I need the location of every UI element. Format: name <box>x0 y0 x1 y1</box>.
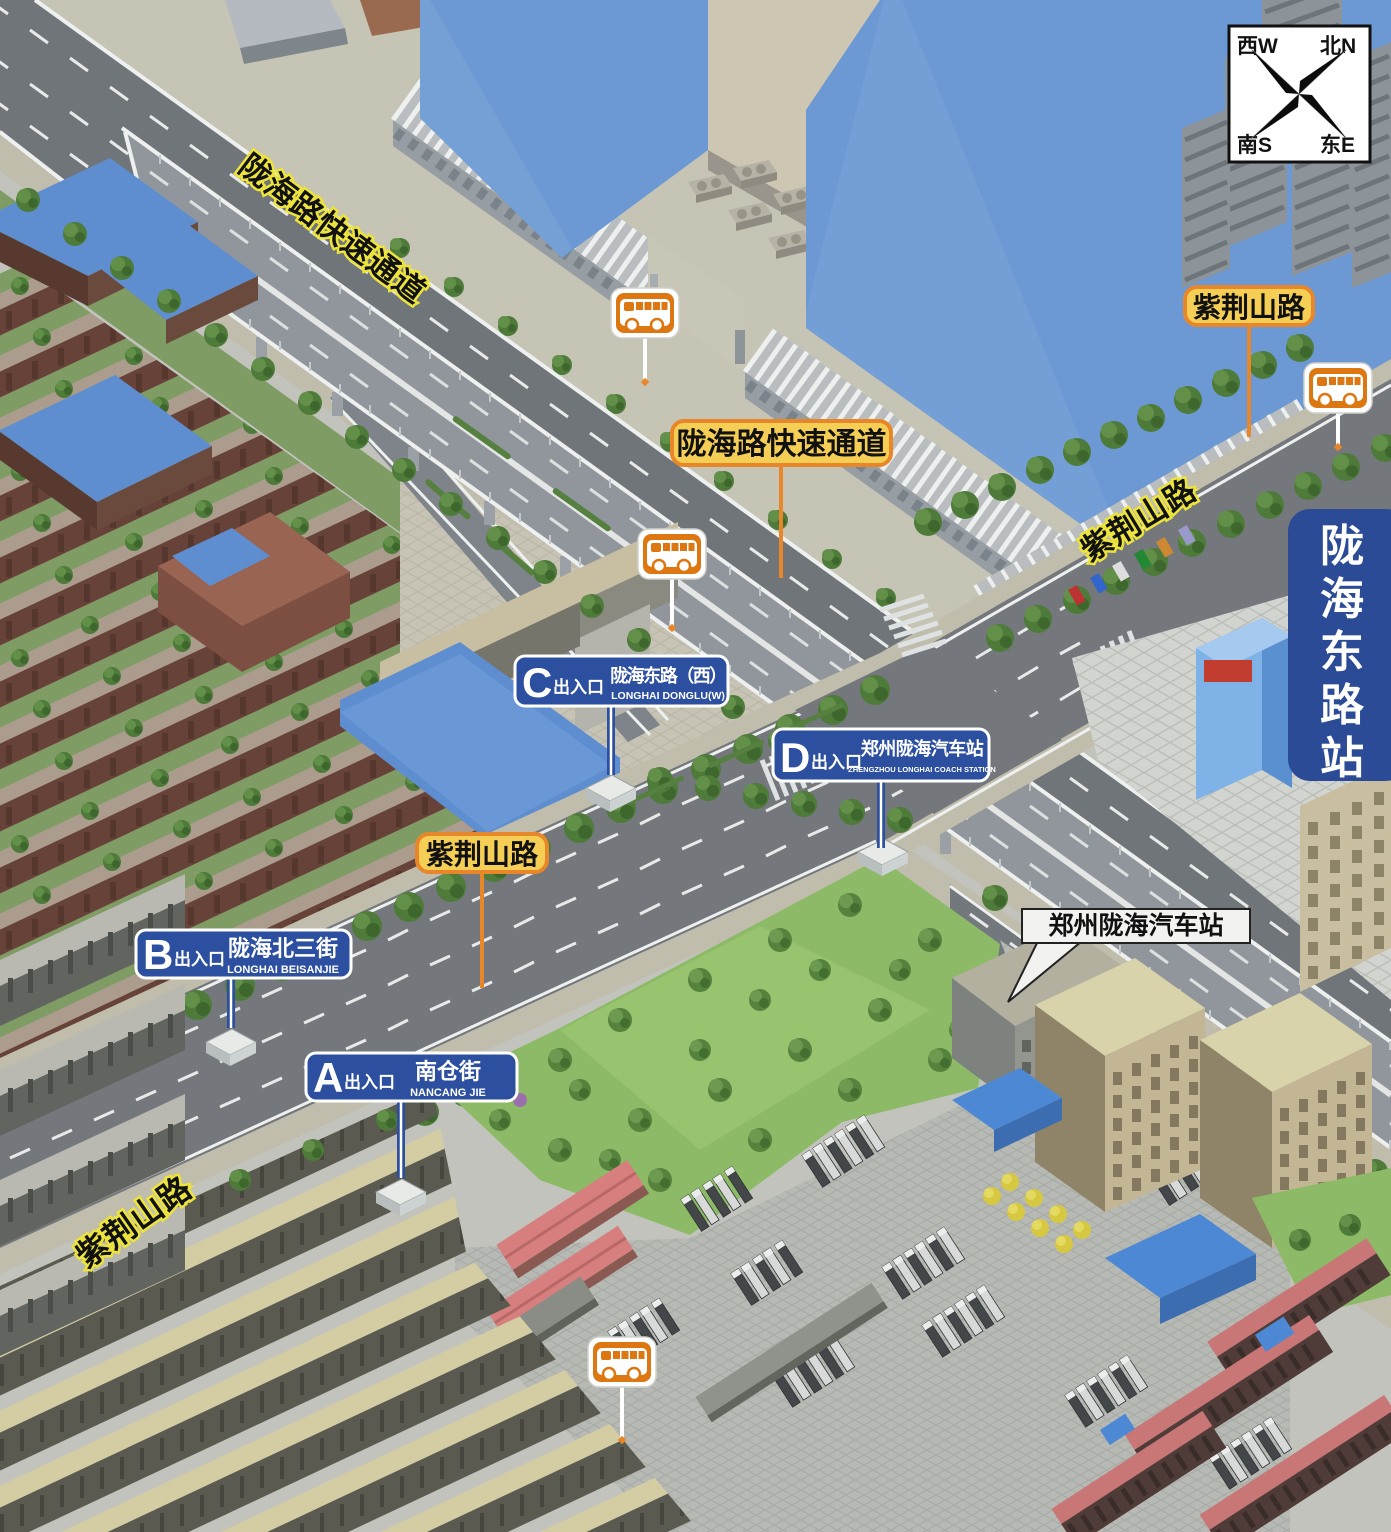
svg-text:A: A <box>313 1054 343 1101</box>
svg-text:东: 东 <box>1320 628 1364 677</box>
svg-text:陇海东路（西）: 陇海东路（西） <box>610 665 726 686</box>
svg-text:LONGHAI BEISANJIE: LONGHAI BEISANJIE <box>227 964 339 976</box>
svg-text:陇海北三街: 陇海北三街 <box>228 936 338 961</box>
svg-text:北N: 北N <box>1320 35 1356 58</box>
svg-text:ZHENGZHOU LONGHAI COACH STATIO: ZHENGZHOU LONGHAI COACH STATION <box>848 765 996 774</box>
svg-text:NANCANG JIE: NANCANG JIE <box>410 1087 486 1099</box>
svg-text:紫荆山路: 紫荆山路 <box>426 839 539 870</box>
svg-text:站: 站 <box>1320 734 1364 783</box>
svg-text:陇海路快速通道: 陇海路快速通道 <box>677 428 887 461</box>
svg-text:路: 路 <box>1320 681 1365 730</box>
svg-text:D: D <box>780 734 810 781</box>
svg-text:LONGHAI DONGLU(W): LONGHAI DONGLU(W) <box>611 690 725 702</box>
svg-text:C: C <box>522 659 552 706</box>
svg-text:海: 海 <box>1320 575 1364 624</box>
svg-text:南仓街: 南仓街 <box>415 1059 481 1084</box>
svg-text:东E: 东E <box>1320 133 1355 157</box>
svg-text:出入口: 出入口 <box>174 949 225 969</box>
svg-text:紫荆山路: 紫荆山路 <box>1193 292 1306 323</box>
svg-text:郑州陇海汽车站: 郑州陇海汽车站 <box>1048 911 1223 940</box>
svg-text:郑州陇海汽车站: 郑州陇海汽车站 <box>861 738 984 759</box>
svg-text:陇: 陇 <box>1320 522 1364 571</box>
svg-text:出入口: 出入口 <box>553 677 604 697</box>
svg-text:出入口: 出入口 <box>344 1072 395 1092</box>
svg-text:B: B <box>143 931 173 978</box>
